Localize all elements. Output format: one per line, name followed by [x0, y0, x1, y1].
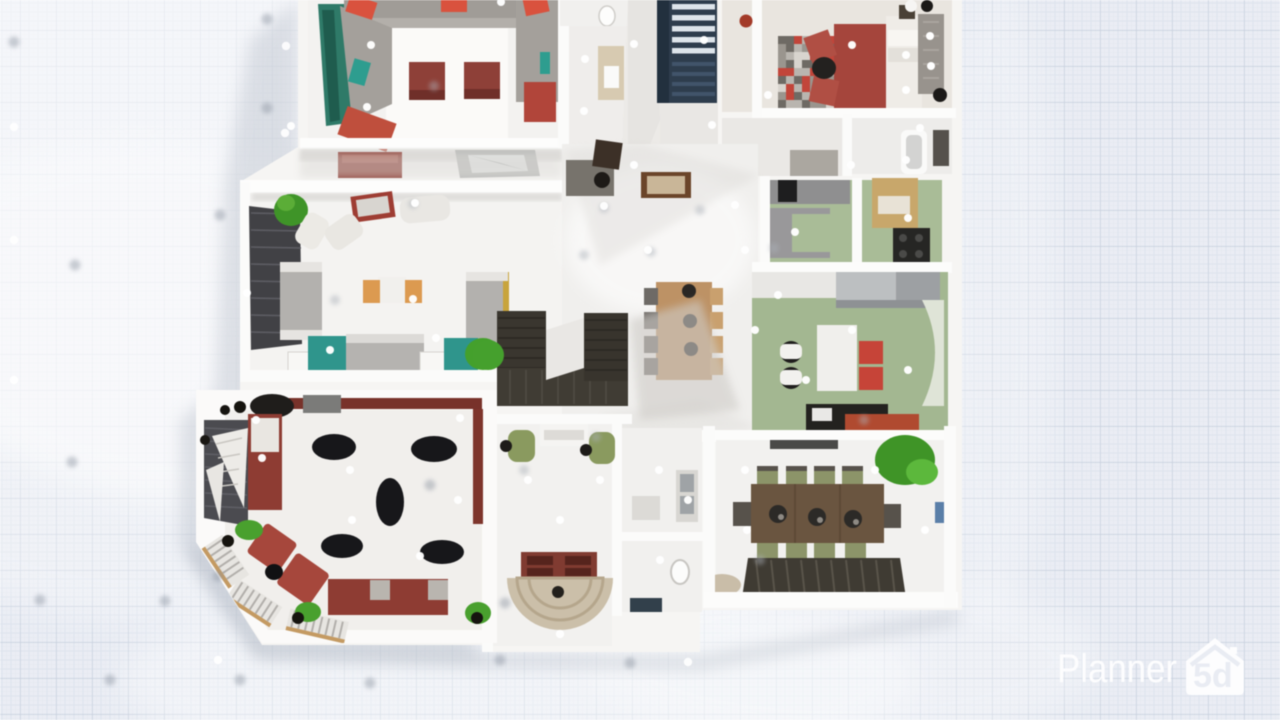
- svg-text:5d: 5d: [1193, 657, 1233, 695]
- svg-text:Planner: Planner: [1057, 647, 1177, 691]
